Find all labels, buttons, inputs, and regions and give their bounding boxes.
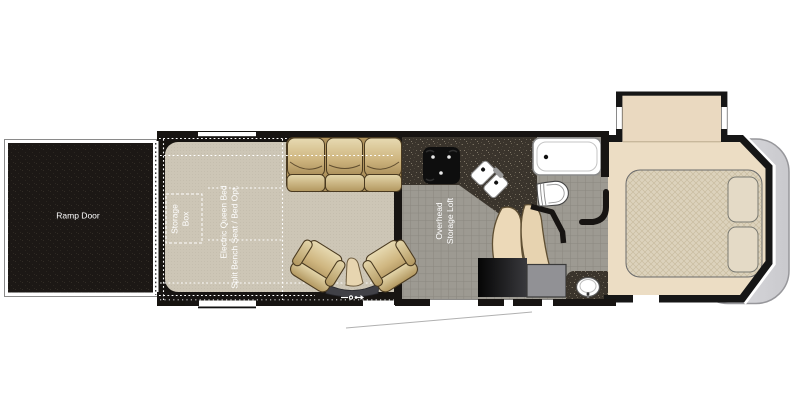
svg-text:Overhead: Overhead xyxy=(434,202,444,240)
svg-text:Box: Box xyxy=(181,211,191,226)
svg-text:Electric Queen Bed: Electric Queen Bed xyxy=(219,185,229,259)
svg-text:Split Bench Seat / Bed Opt.: Split Bench Seat / Bed Opt. xyxy=(230,185,240,288)
svg-text:Storage: Storage xyxy=(170,204,180,234)
svg-text:Ramp Door: Ramp Door xyxy=(56,211,100,221)
svg-text:Storage Loft: Storage Loft xyxy=(445,197,455,244)
